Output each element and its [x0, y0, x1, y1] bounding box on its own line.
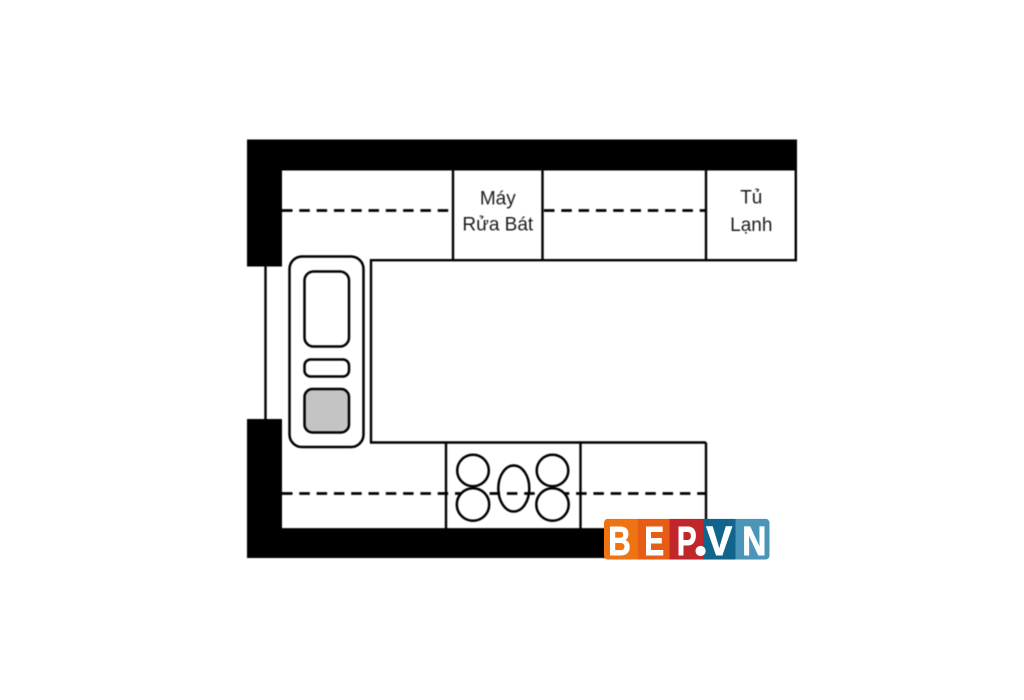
- svg-text:Tủ: Tủ: [740, 188, 762, 209]
- svg-text:Máy: Máy: [480, 189, 516, 210]
- svg-text:Lạnh: Lạnh: [730, 215, 772, 236]
- svg-text:B: B: [608, 518, 631, 564]
- svg-text:Rửa Bát: Rửa Bát: [462, 215, 534, 236]
- svg-text:P: P: [677, 518, 697, 564]
- svg-text:V: V: [706, 518, 733, 564]
- svg-text:N: N: [742, 518, 766, 564]
- svg-text:E: E: [644, 518, 664, 564]
